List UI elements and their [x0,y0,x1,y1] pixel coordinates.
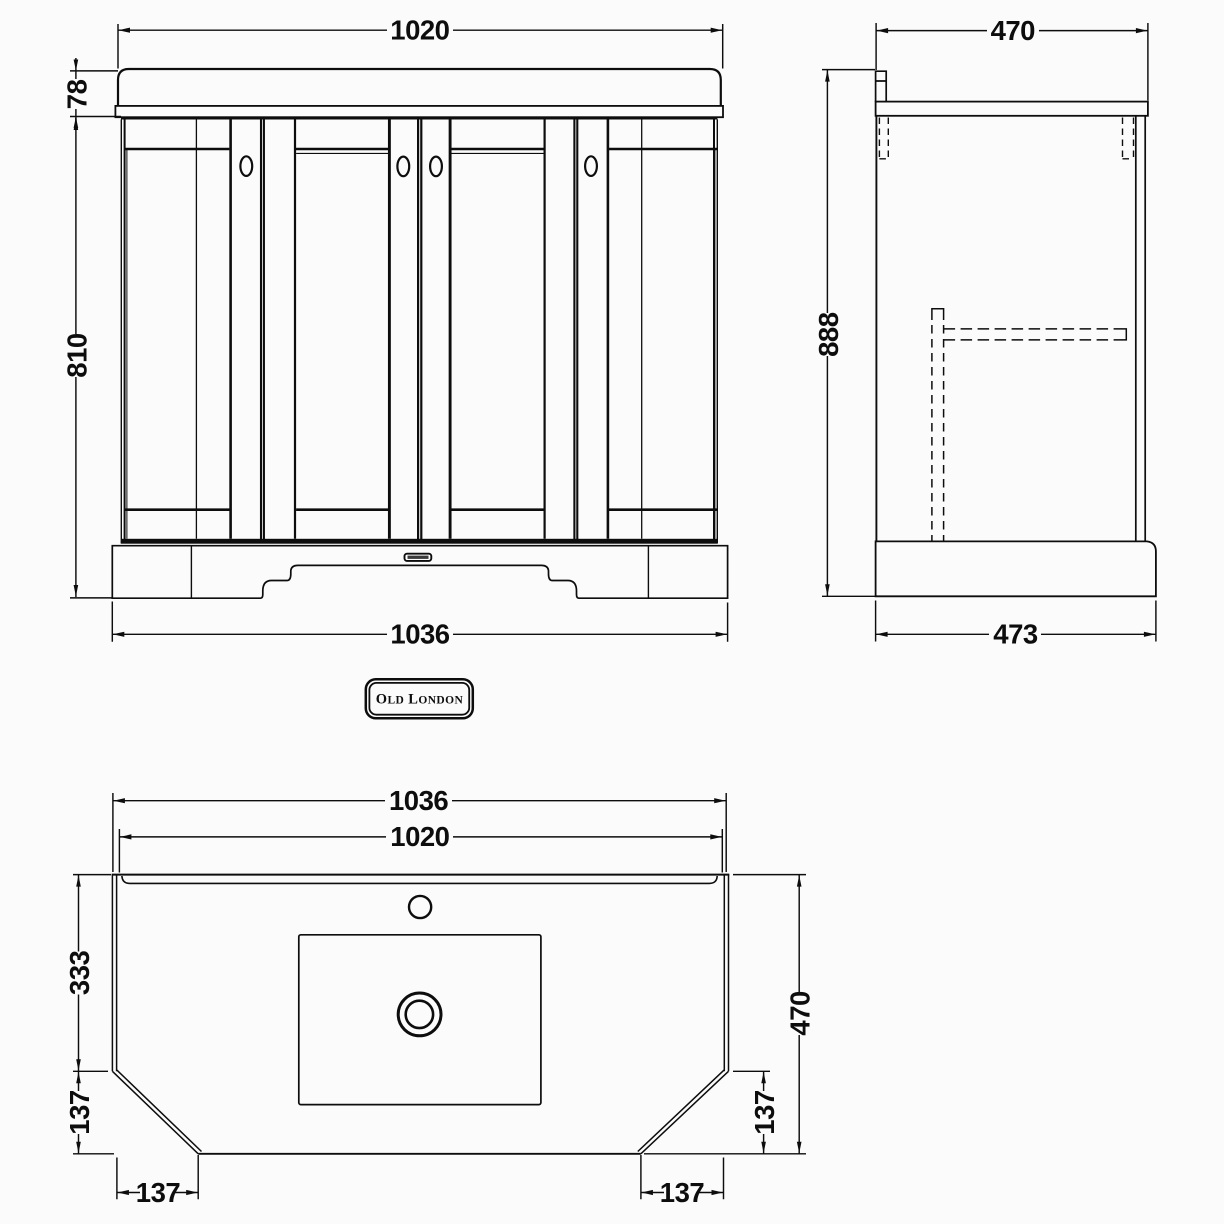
svg-text:78: 78 [61,79,92,109]
svg-text:470: 470 [785,991,816,1036]
svg-text:1036: 1036 [389,785,448,816]
svg-text:473: 473 [993,619,1038,650]
svg-text:1036: 1036 [390,619,449,650]
svg-text:137: 137 [64,1090,95,1135]
svg-text:137: 137 [660,1177,705,1208]
svg-text:137: 137 [136,1177,181,1208]
svg-text:888: 888 [813,312,844,357]
svg-text:470: 470 [991,15,1036,46]
svg-text:OLD LONDON: OLD LONDON [376,692,464,708]
svg-text:137: 137 [749,1090,780,1135]
svg-text:810: 810 [61,333,92,378]
svg-text:1020: 1020 [390,821,449,852]
svg-text:1020: 1020 [390,15,449,46]
svg-text:333: 333 [64,951,95,996]
